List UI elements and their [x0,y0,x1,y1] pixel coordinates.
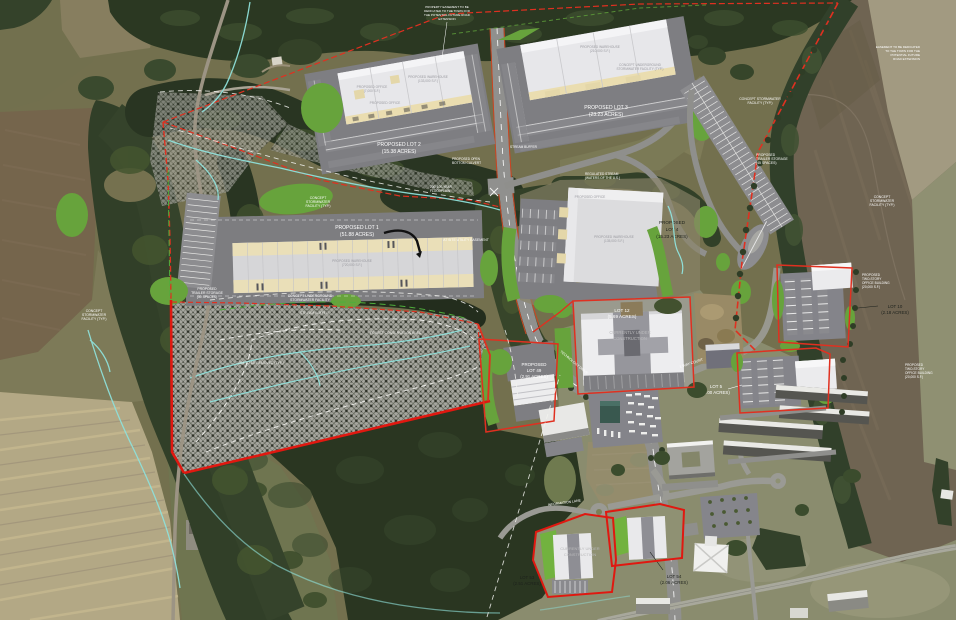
svg-text:(WATERS OF THE U.S.): (WATERS OF THE U.S.) [585,176,620,180]
svg-text:CURRENTLY UNDER: CURRENTLY UNDER [609,330,650,335]
svg-text:(135,000 S.F.): (135,000 S.F.) [604,239,624,243]
svg-text:FACILITY (TYP.): FACILITY (TYP.) [82,317,107,321]
svg-text:LOT 10: LOT 10 [888,304,903,309]
svg-text:LOT 4: LOT 4 [666,227,679,232]
svg-text:LOT 5: LOT 5 [710,384,723,389]
svg-text:PROPOSED: PROPOSED [522,362,547,367]
svg-text:(2.06 ACRES): (2.06 ACRES) [660,580,688,585]
svg-text:CURRENTLY UNDER: CURRENTLY UNDER [560,546,600,551]
svg-text:STORMWATER FACILITY (TYP.): STORMWATER FACILITY (TYP.) [617,67,664,71]
svg-text:(7,000 S.F.): (7,000 S.F.) [364,89,380,93]
svg-text:PROPOSED LOT 2: PROPOSED LOT 2 [377,142,421,148]
svg-text:(720,000 S.F.): (720,000 S.F.) [342,263,362,267]
svg-text:BOTTOM CULVERT: BOTTOM CULVERT [452,161,481,165]
svg-text:(51.88 ACRES): (51.88 ACRES) [340,232,375,238]
svg-text:PROPOSED LOT 1: PROPOSED LOT 1 [335,225,379,231]
svg-text:STREAM BUFFER: STREAM BUFFER [510,145,538,149]
svg-text:PROPOSED OFFICE: PROPOSED OFFICE [575,195,606,199]
svg-text:(5.69 ACRES): (5.69 ACRES) [608,314,637,319]
svg-text:(2.18 ACRES): (2.18 ACRES) [881,310,909,315]
svg-text:LOT 49: LOT 49 [527,368,542,373]
svg-text:(210,000 S.F.): (210,000 S.F.) [590,49,610,53]
svg-text:FACILITY (TYP.): FACILITY (TYP.) [306,204,331,208]
svg-text:TRIM TO BE REMOVED (TYP.): TRIM TO BE REMOVED (TYP.) [236,361,284,365]
svg-text:(23.23 ACRES): (23.23 ACRES) [589,112,624,118]
svg-text:PROPOSED OFFICE: PROPOSED OFFICE [370,101,401,105]
svg-text:(30 SPACES): (30 SPACES) [197,295,217,299]
svg-text:LOT 12: LOT 12 [614,308,630,313]
svg-text:LOT 53: LOT 53 [520,575,535,580]
svg-text:(20,000 S.F.): (20,000 S.F.) [905,375,923,379]
svg-text:CONSTRUCTION: CONSTRUCTION [564,552,596,557]
svg-text:FLOODPLAIN: FLOODPLAIN [430,189,451,193]
svg-text:(45 SPACES): (45 SPACES) [756,161,776,165]
svg-text:STORMWATER FACILITY: STORMWATER FACILITY [290,298,330,302]
svg-text:PROPOSED LOT 3: PROPOSED LOT 3 [584,105,628,111]
svg-text:(2.91 ACRES): (2.91 ACRES) [520,374,548,379]
svg-text:STREAM BUFFER: STREAM BUFFER [300,311,329,315]
svg-text:(15.23 ACRES): (15.23 ACRES) [656,234,688,239]
svg-text:(15.38 ACRES): (15.38 ACRES) [382,149,417,155]
svg-text:(133,000 S.F.): (133,000 S.F.) [418,79,438,83]
svg-text:EXTENSION: EXTENSION [438,17,455,21]
svg-text:CONSTRUCTION: CONSTRUCTION [613,336,647,341]
svg-text:FACILITY (TYP.): FACILITY (TYP.) [870,203,895,207]
svg-text:LOT 54: LOT 54 [667,574,682,579]
svg-text:ROAD EXTENSION: ROAD EXTENSION [893,57,920,61]
svg-text:(20,000 S.F.): (20,000 S.F.) [862,285,880,289]
svg-text:(2.51 ACRES): (2.51 ACRES) [513,581,541,586]
svg-text:FOREST CONSERVATION AREA: FOREST CONSERVATION AREA [370,331,422,335]
svg-text:FACILITY (TYP.): FACILITY (TYP.) [748,101,773,105]
